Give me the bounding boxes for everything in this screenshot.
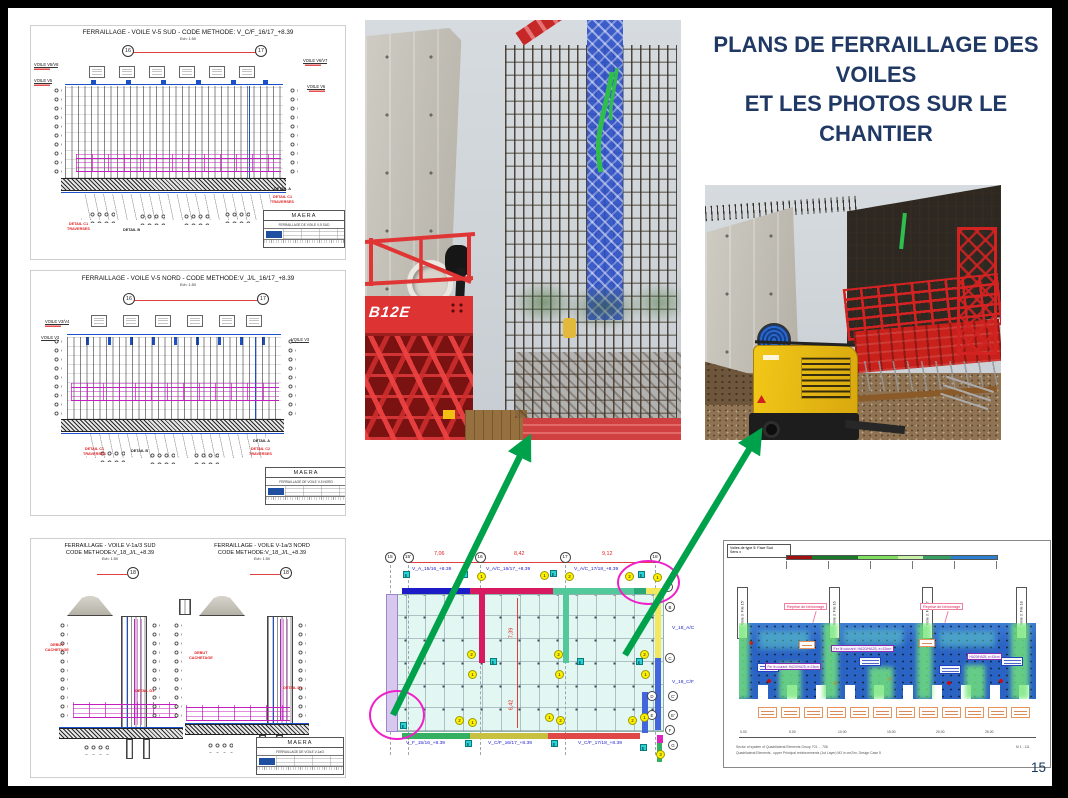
manchon-box <box>123 315 139 327</box>
label-voile-v6: VOILE V6 <box>307 84 325 89</box>
wall-code-label: V_A/C_16/17_+8.39 <box>486 567 530 572</box>
slab-grid <box>386 594 664 732</box>
wheel <box>763 421 780 438</box>
rebar-type-marker: 2 <box>467 650 476 659</box>
grid-bubble-17: 17 <box>255 45 267 57</box>
rivets <box>449 302 465 314</box>
rebar-type-marker: 1 <box>555 670 564 679</box>
label-voile-v5v8: VOILE V5/V8 <box>34 62 58 67</box>
slab-edge-line <box>67 334 281 335</box>
red-code-mark <box>305 64 321 66</box>
scale-ticks <box>786 561 998 569</box>
rebar-linework <box>67 337 281 419</box>
dimension-value-vertical: 6,42 <box>508 700 514 711</box>
red-code-mark <box>45 325 61 327</box>
column-capital <box>67 596 113 616</box>
axis-tick-label: 25.00 <box>985 730 994 734</box>
callout-cluster <box>139 212 165 225</box>
grid-bubble: B <box>665 602 675 612</box>
drawing-scale: Ech: 1:50 <box>31 37 345 41</box>
section-cut-marker <box>551 740 558 747</box>
revision-cells <box>283 229 344 239</box>
reinforcement-callout-box <box>988 707 1007 718</box>
revision-cells <box>276 756 343 766</box>
manchon-box <box>149 66 165 78</box>
cachetage-note: DEBUTCACHETAGE <box>45 643 69 652</box>
detail-b-label: DETAIL B <box>131 449 148 454</box>
axis-tick-label: 0.00 <box>740 730 747 734</box>
title-block-brand: MAERA <box>264 211 344 221</box>
callout-reprise-2: Reprise de bétonnage <box>920 603 963 610</box>
wall-code-label: V_18_A/C <box>672 626 694 631</box>
dimension-value-vertical: 7,39 <box>508 628 514 639</box>
wall-strip-crimson <box>479 594 485 663</box>
red-code-mark <box>34 68 50 70</box>
rebar-type-marker: 1 <box>545 713 554 722</box>
grid-bubble: 15 <box>385 552 396 563</box>
wall-code-label: V_18_C/F <box>672 680 694 685</box>
callout-reprise-1: Reprise de bétonnage <box>784 603 827 610</box>
pile-leg <box>126 739 133 759</box>
fem-contour-strip: Fer lit courant: HA20/HA25, e=15cm Fer l… <box>739 623 1036 699</box>
rebar-type-marker: 1 <box>477 572 486 581</box>
drawing-voile-v5-sud: FERRAILLAGE - VOILE V-5 SUD - CODE METHO… <box>30 25 346 260</box>
rebar-type-marker: 2 <box>565 572 574 581</box>
drawing-title-right: FERRAILLAGE - VOILE V-1a/3 NORD <box>105 543 346 549</box>
reinforcement-callout-box <box>965 707 984 718</box>
manchon-box <box>187 315 203 327</box>
axis-tick-label: 15.00 <box>887 730 896 734</box>
detail-c2-label: DETAIL C2TRAVERSES <box>249 447 272 456</box>
scissor-mechanism <box>365 336 473 440</box>
title-block-brand: MAERA <box>257 738 343 748</box>
grid-bubble-18: 18 <box>280 567 292 579</box>
dim-line-top <box>408 562 655 563</box>
reinforcement-callout-box <box>873 707 892 718</box>
site-clutter <box>515 352 681 418</box>
color-scale-bar <box>786 555 998 560</box>
grid-bubble-18: 18 <box>127 567 139 579</box>
worker-hivis <box>563 318 576 338</box>
title-block: MAERA FERRAILLAGE DE VOILE V-5 NORD <box>265 467 346 505</box>
title-block-footer <box>264 239 344 243</box>
red-code-mark <box>309 90 325 92</box>
reinforcement-callout-box <box>1011 707 1030 718</box>
column-capital <box>199 596 245 616</box>
grid-bubble: 15' <box>403 552 414 563</box>
footing-hatch <box>61 178 286 191</box>
title-block-subtitle: FERRAILLAGE DE VOILE V-5 SUD <box>264 221 344 229</box>
callout-cluster <box>89 210 115 223</box>
company-logo <box>268 488 284 495</box>
drawing-code-right: CODE METHODE:V_18_J/L_+8.39 <box>105 550 346 556</box>
rebar-type-marker: 2 <box>455 716 464 725</box>
rebar-type-marker: 1 <box>640 713 649 722</box>
grid-bubble: 17 <box>560 552 571 563</box>
warning-sticker <box>443 410 455 419</box>
section-cut-marker <box>403 571 410 578</box>
title-line-2: ET LES PHOTOS SUR LE CHANTIER <box>698 89 1054 148</box>
title-block-footer <box>266 496 346 500</box>
grid-bubble: G <box>668 740 678 750</box>
blue-bar-line <box>255 337 256 419</box>
drawing-title: FERRAILLAGE - VOILE V-5 SUD - CODE METHO… <box>31 29 345 36</box>
scale-seg-blue <box>951 556 997 559</box>
section-cut-marker <box>461 571 468 578</box>
section-cut-marker <box>636 658 643 665</box>
pile-leg <box>143 739 150 759</box>
drawing-scale-right: Ech: 1:50 <box>105 557 346 561</box>
manchon-box <box>179 66 195 78</box>
callout-bubbles-left <box>53 337 62 417</box>
detail-c1-label: DETAIL C1TRAVERSES <box>83 447 106 456</box>
dim-line-vert <box>517 598 518 728</box>
highlight-ellipse-bottom <box>369 690 425 740</box>
rebar-type-marker: 1 <box>540 571 549 580</box>
scale-seg-darkgreen <box>812 556 858 559</box>
callout-leader-2 <box>944 611 948 623</box>
axis-tick-label: 5.00 <box>789 730 796 734</box>
title-block-cells <box>257 756 343 766</box>
scale-seg-brightgreen <box>858 556 898 559</box>
rebar-type-marker: 1 <box>468 670 477 679</box>
red-code-mark <box>34 84 50 86</box>
fem-scale-note: M 1 : 111 <box>1016 745 1030 749</box>
footing-hatch <box>61 419 284 432</box>
manchon-box <box>155 315 171 327</box>
callout-cluster <box>207 741 233 753</box>
red-barrier <box>523 418 681 440</box>
grid-bubble: C' <box>668 691 678 701</box>
grid-bubble: 16 <box>475 552 486 563</box>
fem-footnote-1: Sector of system of Quadrilateral Elemen… <box>736 745 828 749</box>
scale-seg-palegreen <box>898 556 923 559</box>
rebar-type-marker: 2 <box>556 716 565 725</box>
title-block-footer <box>257 766 343 770</box>
wall-bar-blue <box>402 588 470 594</box>
grid-bubble-17: 17 <box>257 293 269 305</box>
detail-c1-label: DETAIL C1TRAVERSES <box>271 195 294 204</box>
manchon-box <box>239 66 255 78</box>
detail-c1-label: DETAIL C1TRAVERSES <box>67 222 90 231</box>
title-block-cells <box>266 486 346 496</box>
reinforcement-callout-box <box>850 707 869 718</box>
photo-rebar-cage-site: B12E <box>365 20 681 440</box>
scale-seg-darkred <box>787 556 812 559</box>
callout-cluster <box>183 212 209 225</box>
footing-hatch <box>59 728 183 739</box>
slide: PLANS DE FERRAILLAGE DES VOILES ET LES P… <box>8 8 1052 786</box>
grid-bubble-16: 16 <box>122 45 134 57</box>
callout-bubbles-left <box>53 86 62 178</box>
detail-a-label: DETAIL A <box>253 439 270 444</box>
title-block-subtitle: FERRAILLAGE DE VOILE V-5 NORD <box>266 478 346 486</box>
drawing-title: FERRAILLAGE - VOILE V-5 NORD - CODE METH… <box>31 275 345 282</box>
callout-leader-1 <box>812 611 816 623</box>
section-cut-marker <box>577 658 584 665</box>
reinforcement-callout-box <box>827 707 846 718</box>
company-logo <box>266 231 282 238</box>
reinforcement-callout-box <box>758 707 777 718</box>
dimension-value: 7,06 <box>434 551 445 557</box>
callout-bubbles <box>59 621 68 721</box>
fem-results-sheet: Voiles de type 5: Face Sud Sens x Repris… <box>723 540 1051 768</box>
label-voile-v3v4: VOILE V3/V4 <box>45 319 69 324</box>
magenta-bars <box>73 702 177 718</box>
wall-code-label: V_A_15/16_+8.39 <box>412 567 451 572</box>
title-block-cells <box>264 229 344 239</box>
reinforcement-callout-box <box>942 707 961 718</box>
manchon-box <box>91 315 107 327</box>
dimension-line <box>131 52 257 53</box>
wall-bar-olive <box>470 733 548 739</box>
grid-bubble: F <box>665 725 675 735</box>
page-number: 15 <box>998 760 1046 775</box>
grid-bubble: D <box>647 691 657 701</box>
dimension-value: 9,12 <box>602 551 613 557</box>
magenta-square-marker <box>657 735 663 743</box>
callout-cluster <box>83 743 109 755</box>
magenta-bars <box>71 383 279 401</box>
manchon-box <box>246 315 262 327</box>
title-block: MAERA FERRAILLAGE DE VOILE V-5 SUD <box>263 210 345 248</box>
label-voile-v5: VOILE V5 <box>34 78 52 83</box>
cachetage-note: DEBUTCACHETAGE <box>189 651 213 660</box>
axis-tick-label: 10.00 <box>838 730 847 734</box>
reinforcement-callout-box <box>804 707 823 718</box>
detail-d1-label: DETAIL D1 <box>135 689 154 694</box>
callout-bubbles <box>151 621 160 721</box>
detail-d1-label: DETAIL D1 <box>283 686 302 691</box>
magenta-bars <box>76 154 281 172</box>
lift-body: B12E <box>365 296 473 336</box>
dimension-line <box>97 574 127 575</box>
section-cut-marker <box>640 744 647 751</box>
rebar-type-marker: 2 <box>628 716 637 725</box>
reinforcement-callout-box <box>781 707 800 718</box>
callout-bubbles-right <box>287 337 296 417</box>
grid-bubble: E' <box>668 710 678 720</box>
access-tower <box>957 227 997 355</box>
grid-bubble-16: 16 <box>123 293 135 305</box>
title-line-1: PLANS DE FERRAILLAGE DES VOILES <box>698 30 1054 89</box>
wall-code-label: V_A/C_17/18_+8.39 <box>574 567 618 572</box>
reinforcement-callout-box <box>919 707 938 718</box>
magenta-bars <box>186 705 290 721</box>
reinforcement-callout-box <box>896 707 915 718</box>
section-cut-marker <box>465 740 472 747</box>
drawing-scale: Ech: 1:50 <box>31 283 345 287</box>
callout-cluster <box>149 451 175 464</box>
company-logo <box>259 758 275 765</box>
scale-seg-seagreen <box>923 556 950 559</box>
wall-code-label: V_F_15/16_+8.39 <box>406 741 445 746</box>
manchon-box <box>209 66 225 78</box>
title-block: MAERA FERRAILLAGE DE VOILE V-1a/3 <box>256 737 344 775</box>
compressor-grille <box>801 357 851 399</box>
detail-a-label: DETAIL A <box>274 187 291 192</box>
label-voile-v6v7: VOILE V6/V7 <box>303 58 327 63</box>
axis-tick-label: 20.00 <box>936 730 945 734</box>
slide-title: PLANS DE FERRAILLAGE DES VOILES ET LES P… <box>698 30 1054 149</box>
grid-bubble: C <box>665 653 675 663</box>
highlight-ellipse-top <box>617 560 680 605</box>
title-block-subtitle: FERRAILLAGE DE VOILE V-1a/3 <box>257 748 343 756</box>
plan-key-colored: 1515'161718ABCDC'EE'FG7,068,429,127,396,… <box>376 542 708 774</box>
callout-bubbles <box>297 621 306 721</box>
rebar-note-right: HA20/HA25, e=15cm <box>967 653 1002 660</box>
wall-code-label: V_C/F_17/18_+8.39 <box>578 741 622 746</box>
decal <box>763 355 779 360</box>
title-block-brand: MAERA <box>266 468 346 478</box>
section-cut-marker <box>550 570 557 577</box>
wall-strip-green <box>563 594 569 663</box>
fem-legend-box: Voiles de type 5: Face Sud Sens x <box>727 544 791 558</box>
column-outline <box>179 599 191 615</box>
footing-edge-line <box>59 727 183 728</box>
callout-cluster <box>193 451 219 464</box>
drawing-voile-v1a3: FERRAILLAGE - VOILE V-1a/3 SUD CODE METH… <box>30 538 346 778</box>
wall-bar-red <box>548 733 640 739</box>
manchon-box <box>119 66 135 78</box>
fem-footnote-2: Quadrilateral Elements , upper Principal… <box>736 751 881 755</box>
callout-cluster <box>224 210 250 223</box>
wall-code-label: V_C/F_16/17_+8.39 <box>488 741 532 746</box>
dimension-line <box>132 300 260 301</box>
footing-hatch <box>185 724 309 735</box>
rebar-type-marker: 1 <box>468 718 477 727</box>
manchon-box <box>89 66 105 78</box>
section-cut-marker <box>490 658 497 665</box>
footing-edge-line <box>185 723 309 724</box>
rebar-type-marker: 3 <box>656 750 665 759</box>
machine-model-label: B12E <box>368 304 411 321</box>
rebar-type-marker: 1 <box>641 670 650 679</box>
rebar-note-main: Fer lit courant: HA20/HA25, e=15cm <box>831 645 894 652</box>
dimension-line <box>250 574 280 575</box>
callout-bubbles-right <box>289 86 298 178</box>
rebar-note-left: Fer lit courant: HA20/HA25, e=15cm <box>765 663 821 670</box>
detail-b-label: DETAIL B <box>123 228 140 233</box>
rebar-type-marker: 2 <box>554 650 563 659</box>
manchon-box <box>219 315 235 327</box>
fem-subtitle: Sens x <box>730 550 788 554</box>
dimension-value: 8,42 <box>514 551 525 557</box>
photo-wall-formwork-site <box>705 185 1001 440</box>
revision-cells <box>285 486 346 496</box>
callout-bubbles <box>173 621 182 721</box>
axis-line <box>739 737 1036 738</box>
drawing-voile-v5-nord: FERRAILLAGE - VOILE V-5 NORD - CODE METH… <box>30 270 346 516</box>
